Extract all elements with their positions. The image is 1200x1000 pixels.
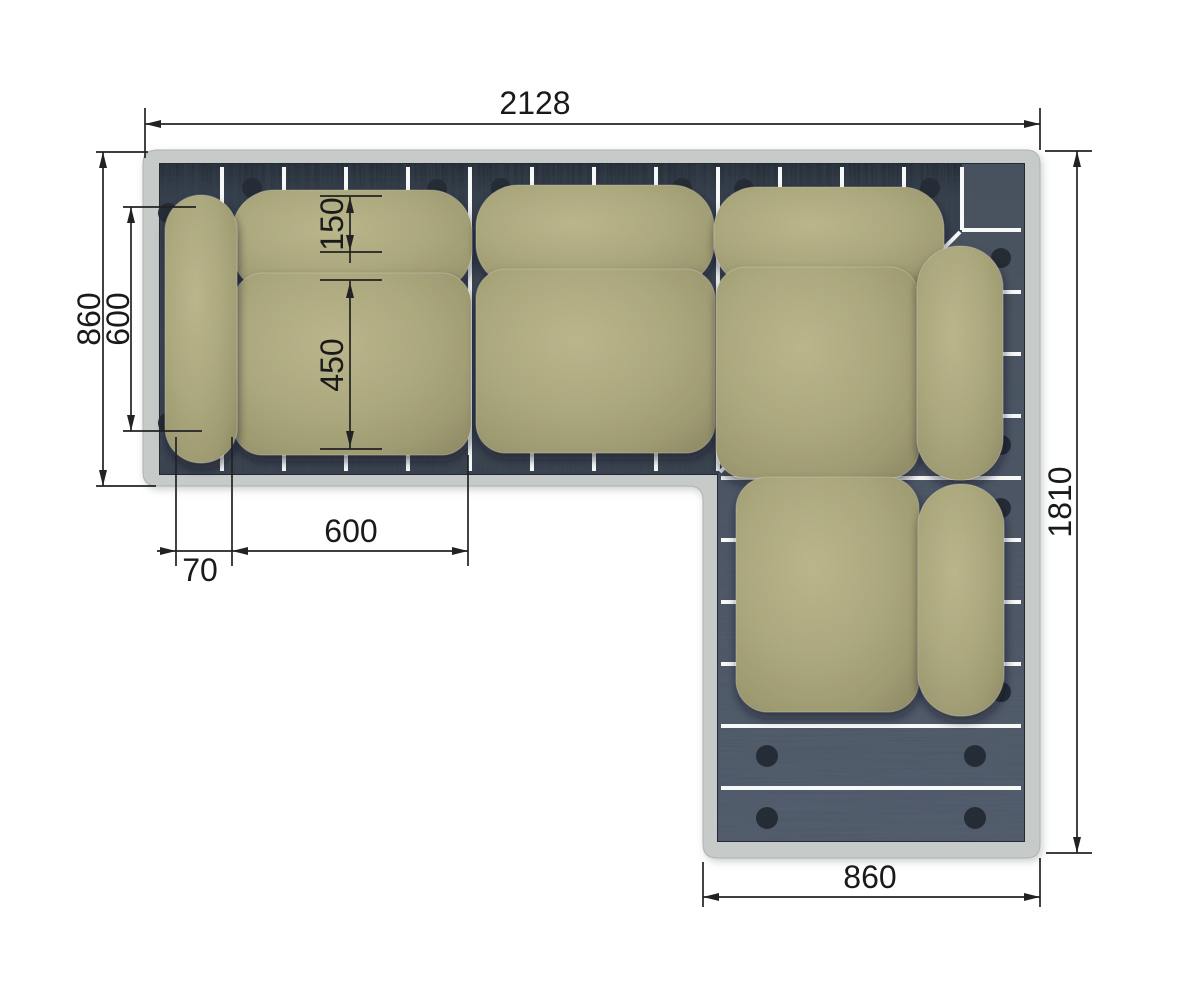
- left-armrest-cushion: [165, 195, 237, 463]
- corner-seat-cushion: [716, 267, 919, 478]
- dimension-value: 600: [100, 292, 136, 345]
- bolt: [964, 807, 986, 829]
- dimension-value: 70: [182, 552, 218, 588]
- bolt: [964, 745, 986, 767]
- dimension-value: 450: [314, 338, 350, 391]
- seat-cushion-1: [233, 273, 471, 455]
- drawing-canvas: 2128 860 600 150: [0, 0, 1200, 1000]
- dimension-value: 150: [314, 197, 350, 250]
- dimension-value: 1810: [1042, 466, 1078, 537]
- dimension-value: 600: [324, 513, 377, 549]
- chaise-seat-cushion: [736, 477, 919, 712]
- seat-cushion-2: [476, 269, 715, 453]
- bolt: [756, 745, 778, 767]
- dimension-value: 2128: [499, 85, 570, 121]
- bolt: [756, 807, 778, 829]
- dimension-value: 860: [843, 859, 896, 895]
- right-backrest-roll-lower: [918, 484, 1004, 716]
- right-backrest-roll-upper: [917, 246, 1003, 480]
- sofa-plan-drawing: 2128 860 600 150: [0, 0, 1200, 1000]
